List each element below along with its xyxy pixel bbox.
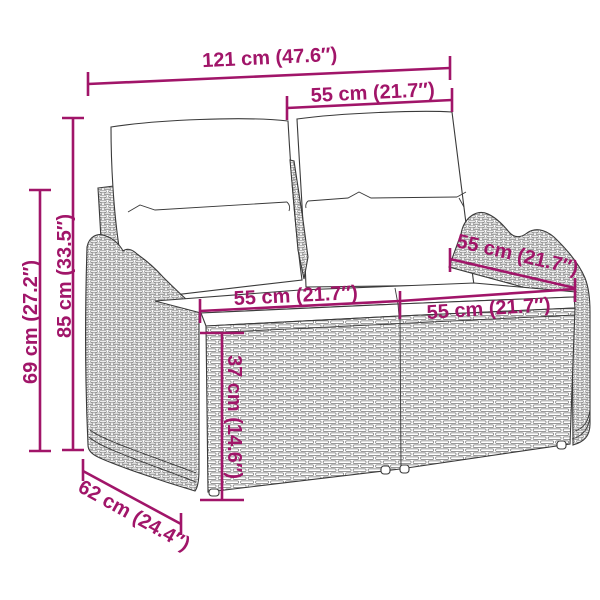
bench-foot [400,465,409,473]
bench-foot [557,441,566,449]
dimension-label-overall-width: 121 cm (47.6″) [202,44,338,72]
front-panel [206,308,575,492]
dimension-label-armrest-height: 69 cm (27.2″) [20,260,42,384]
dimension-label-overall-depth: 62 cm (24.4″) [74,476,193,555]
dimension-diagram: 121 cm (47.6″) 55 cm (21.7″) 85 cm (33.5… [0,0,600,600]
bench-foot [209,489,219,496]
dimension-label-seat-height: 37 cm (14.6″) [223,355,245,479]
right-back-cushion [297,111,474,287]
diagram-canvas: 121 cm (47.6″) 55 cm (21.7″) 85 cm (33.5… [0,0,600,600]
dimension-label-overall-height: 85 cm (33.5″) [54,214,76,338]
bench-foot [381,466,390,474]
